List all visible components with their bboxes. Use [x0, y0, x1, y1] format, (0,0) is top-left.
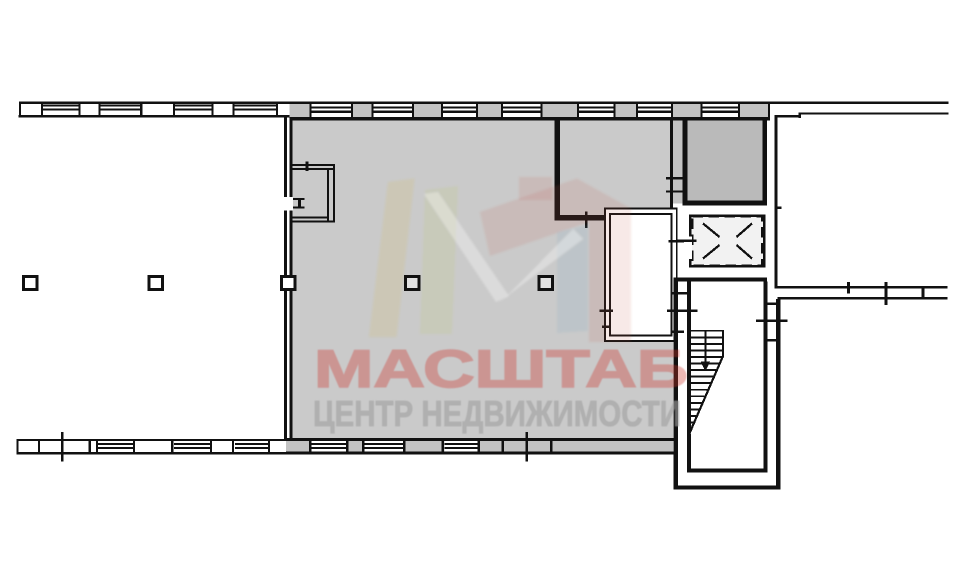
svg-text:ЦЕНТР НЕДВИЖИМОСТИ: ЦЕНТР НЕДВИЖИМОСТИ: [313, 393, 681, 434]
svg-text:МАСШТАБ: МАСШТАБ: [314, 340, 688, 399]
